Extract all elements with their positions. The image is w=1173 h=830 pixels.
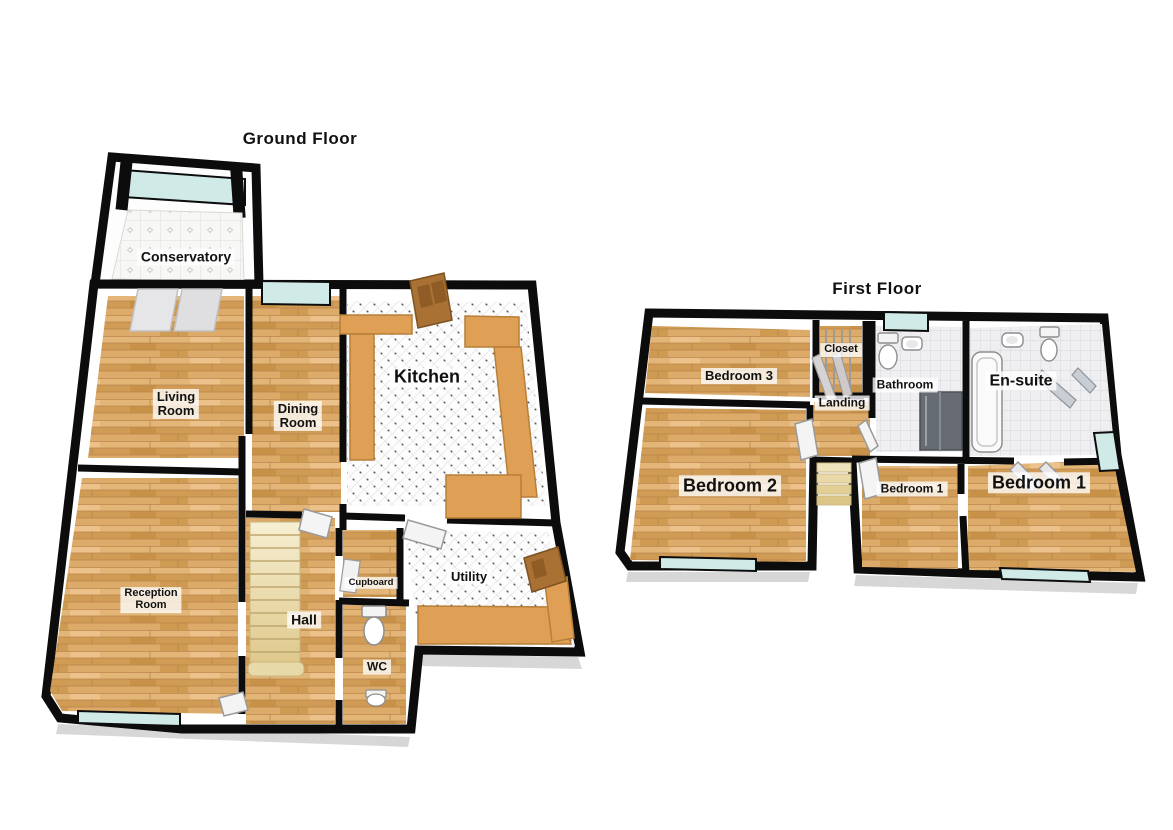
wall bbox=[246, 514, 302, 515]
bedroom-2-window-icon bbox=[660, 557, 756, 571]
room-label-en-suite: En-suite bbox=[985, 371, 1056, 390]
room-label-wc: WC bbox=[363, 660, 391, 675]
dining-room-window-icon bbox=[262, 281, 330, 305]
toilet-icon bbox=[1040, 327, 1059, 337]
bathtub-icon bbox=[972, 352, 1002, 452]
room-label-dining-room: Dining Room bbox=[274, 401, 322, 431]
wall bbox=[641, 401, 810, 405]
sink-icon bbox=[1002, 333, 1023, 347]
wall bbox=[339, 601, 409, 603]
room-label-hall: Hall bbox=[287, 611, 321, 628]
ground-floor-title: Ground Floor bbox=[239, 129, 362, 149]
room-label-kitchen: Kitchen bbox=[390, 366, 464, 387]
room-label-bedroom-1-inner: Bedroom 1 bbox=[877, 482, 948, 497]
reception-room-window-icon bbox=[78, 711, 180, 726]
stairwell-icon bbox=[817, 463, 851, 505]
shower-icon bbox=[920, 392, 962, 450]
room-label-bathroom: Bathroom bbox=[873, 378, 938, 393]
toilet-icon bbox=[1041, 339, 1057, 361]
conservatory-floor bbox=[112, 210, 244, 281]
bedroom-3-floor bbox=[645, 326, 810, 397]
wall bbox=[447, 520, 556, 523]
ground-floor-plan bbox=[46, 157, 582, 747]
room-label-bedroom-1: Bedroom 1 bbox=[988, 472, 1090, 493]
room-label-cupboard: Cupboard bbox=[345, 577, 398, 589]
bedroom-1-window-icon bbox=[1000, 568, 1090, 582]
room-label-closet: Closet bbox=[820, 343, 862, 357]
room-label-utility: Utility bbox=[447, 569, 491, 585]
staircase-icon bbox=[248, 522, 304, 676]
room-label-bedroom-2: Bedroom 2 bbox=[679, 475, 781, 496]
room-label-conservatory: Conservatory bbox=[137, 248, 235, 265]
wall bbox=[963, 516, 966, 575]
first-floor-plan bbox=[620, 312, 1140, 594]
wall bbox=[343, 516, 405, 518]
kitchen-door-icon bbox=[410, 273, 452, 328]
floorplan-canvas: Ground Floor Conservatory Living Room Di… bbox=[0, 0, 1173, 830]
room-label-living-room: Living Room bbox=[153, 389, 199, 419]
room-label-landing: Landing bbox=[815, 396, 870, 411]
room-label-reception-room: Reception Room bbox=[120, 587, 181, 613]
bathroom-window-icon bbox=[884, 312, 928, 331]
first-floor-title: First Floor bbox=[828, 279, 926, 299]
toilet-icon bbox=[362, 606, 386, 617]
room-label-bedroom-3: Bedroom 3 bbox=[701, 368, 777, 384]
sink-icon bbox=[366, 690, 386, 706]
sink-icon bbox=[902, 337, 922, 350]
wall bbox=[78, 468, 242, 472]
toilet-icon bbox=[364, 617, 384, 645]
toilet-icon bbox=[878, 333, 898, 343]
toilet-icon bbox=[879, 345, 897, 369]
